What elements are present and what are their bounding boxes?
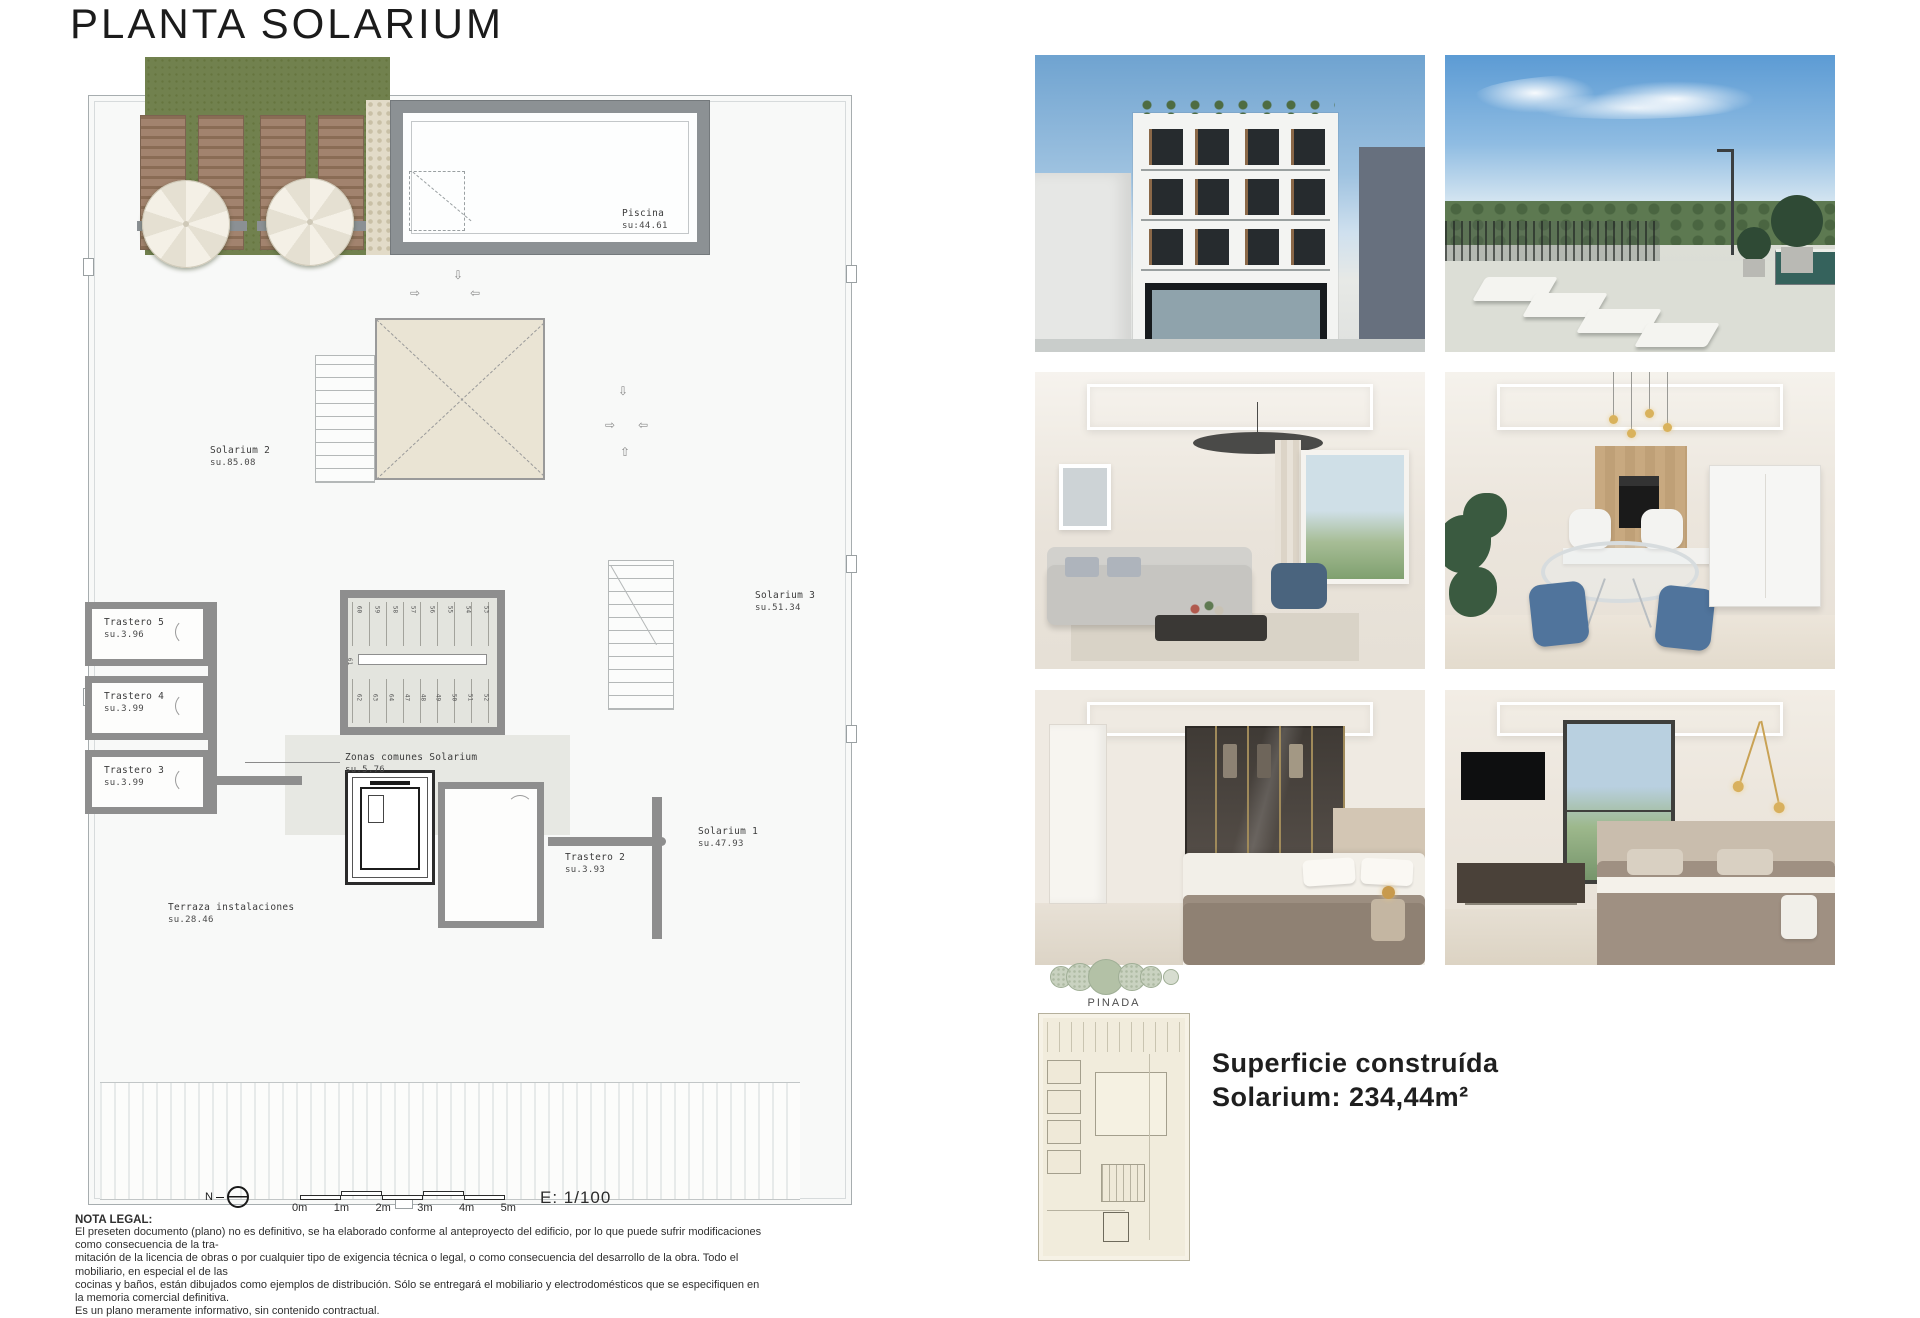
room-trastero-4: Trastero 4 SU.3.99 bbox=[85, 676, 210, 740]
siteplan-room bbox=[1047, 1090, 1081, 1114]
scale-ratio: E: 1/100 bbox=[540, 1188, 611, 1208]
hanging-clothes bbox=[1257, 744, 1271, 778]
window bbox=[1195, 229, 1229, 265]
siteplan-room bbox=[1047, 1150, 1081, 1174]
hanging-clothes bbox=[1289, 744, 1303, 778]
slope-arrow-icon: ⇦ bbox=[470, 286, 480, 300]
pillow bbox=[1360, 858, 1413, 887]
planter-pot bbox=[1781, 247, 1813, 273]
stair-number: 49 bbox=[435, 693, 442, 703]
scale-ticks: 0m1m2m3m4m5m bbox=[292, 1202, 516, 1214]
siteplan-elevator bbox=[1103, 1212, 1129, 1242]
elevator-car bbox=[360, 787, 420, 870]
stair-numbers-lower: 626364474849505152 bbox=[354, 694, 491, 701]
media-console bbox=[1457, 863, 1585, 903]
ceiling-recess bbox=[1087, 384, 1373, 430]
street bbox=[1035, 339, 1425, 352]
pendant-bulb bbox=[1631, 372, 1632, 430]
leader-line bbox=[245, 762, 340, 763]
bed-sheet-fold bbox=[1597, 877, 1835, 893]
compass-icon bbox=[227, 1186, 249, 1208]
window bbox=[1245, 229, 1279, 265]
hanging-clothes bbox=[1223, 744, 1237, 778]
stair-number: 54 bbox=[464, 605, 471, 615]
window bbox=[1149, 229, 1183, 265]
photo-building-exterior bbox=[1035, 55, 1425, 352]
stair-core: 6059585756555453 61 626364474849505152 bbox=[340, 590, 505, 735]
wall-wing bbox=[548, 837, 666, 846]
floor bbox=[1445, 615, 1835, 669]
scale-tick-label: 1m bbox=[334, 1202, 349, 1214]
siteplan-stairs bbox=[1101, 1164, 1145, 1202]
skylight bbox=[375, 318, 545, 480]
tree-icon bbox=[1140, 966, 1162, 988]
room-label-trastero-2: Trastero 2 SU.3.93 bbox=[565, 852, 625, 876]
plant-leaf bbox=[1463, 493, 1507, 539]
room-label-solarium-3: Solarium 3 SU.51.34 bbox=[755, 590, 815, 614]
scale-tick-label: 5m bbox=[501, 1202, 516, 1214]
door-arc bbox=[175, 767, 201, 793]
room-label-solarium-2: Solarium 2 SU.85.08 bbox=[210, 445, 270, 469]
deck-paving bbox=[100, 1082, 800, 1200]
siteplan-room bbox=[1047, 1120, 1081, 1144]
joint-mark bbox=[846, 265, 857, 283]
room-label-zonas-comunes: Zonas comunes Solarium SU.5.76 bbox=[345, 752, 477, 776]
siteplan-line bbox=[1047, 1210, 1125, 1211]
plant bbox=[1737, 227, 1771, 261]
scale-segment bbox=[382, 1195, 423, 1200]
pendant-stem bbox=[1257, 402, 1258, 436]
photo-rooftop-terrace bbox=[1445, 55, 1835, 352]
balcony-rail bbox=[1141, 269, 1330, 271]
joint-mark bbox=[846, 725, 857, 743]
pendant-bulb bbox=[1649, 372, 1650, 410]
stair-number: 52 bbox=[483, 693, 490, 703]
window bbox=[1291, 229, 1325, 265]
stair-flight bbox=[315, 355, 375, 483]
north-compass: N bbox=[205, 1186, 249, 1208]
window bbox=[1195, 129, 1229, 165]
photo-dining-kitchen bbox=[1445, 372, 1835, 669]
siteplan-room bbox=[1047, 1060, 1081, 1084]
stair-number: 56 bbox=[428, 605, 435, 615]
stair-numbers-upper: 6059585756555453 bbox=[354, 606, 491, 613]
summary-line-2: Solarium: 234,44m² bbox=[1212, 1082, 1469, 1113]
photo-bedroom-window bbox=[1445, 690, 1835, 965]
siteplan-line bbox=[1149, 1054, 1150, 1240]
scale-bar bbox=[300, 1191, 505, 1201]
cushion bbox=[1065, 557, 1099, 577]
slope-arrow-icon: ⇨ bbox=[410, 286, 420, 300]
floor-plan: Piscina SU:44.61 ⇩ ⇨ ⇦ ⇩ ⇨ ⇦ ⇧ 605958575… bbox=[60, 40, 870, 1210]
stair-number: 47 bbox=[403, 693, 410, 703]
window bbox=[1245, 179, 1279, 215]
room-trastero-2 bbox=[438, 782, 544, 928]
nightstand bbox=[1781, 895, 1817, 939]
sideboard-cabinet bbox=[1709, 465, 1821, 607]
parasol bbox=[142, 180, 230, 268]
joint-mark bbox=[846, 555, 857, 573]
elevator-shaft bbox=[345, 770, 435, 885]
stair-number: 55 bbox=[446, 605, 453, 615]
stair-flight bbox=[608, 560, 674, 710]
pillow bbox=[1627, 849, 1683, 875]
stair-handrail bbox=[358, 654, 487, 665]
site-label: PINADA bbox=[1038, 997, 1190, 1009]
room-trastero-5: Trastero 5 SU.3.96 bbox=[85, 602, 210, 666]
stair-number: 61 bbox=[346, 658, 353, 665]
stair-number: 60 bbox=[356, 605, 363, 615]
room-label-piscina: Piscina SU:44.61 bbox=[622, 208, 668, 232]
window bbox=[1149, 129, 1183, 165]
joint-mark bbox=[83, 258, 94, 276]
siteplan-skylight bbox=[1095, 1072, 1167, 1136]
legal-line: Es un plano meramente informativo, sin c… bbox=[75, 1305, 770, 1318]
window bbox=[1195, 179, 1229, 215]
stair-number: 50 bbox=[451, 693, 458, 703]
window bbox=[1291, 129, 1325, 165]
dining-chair-blue bbox=[1528, 580, 1590, 648]
tv-screen bbox=[1461, 752, 1545, 800]
pool-steps bbox=[409, 171, 465, 231]
stair-number: 58 bbox=[392, 605, 399, 615]
compass-line bbox=[216, 1197, 224, 1198]
north-label: N bbox=[205, 1191, 213, 1203]
stair-number: 62 bbox=[356, 693, 363, 703]
balcony-rail bbox=[1141, 219, 1330, 221]
slope-arrow-icon: ⇩ bbox=[453, 268, 463, 282]
wall-art bbox=[1059, 464, 1111, 530]
legal-heading: NOTA LEGAL: bbox=[75, 1214, 770, 1226]
table-lamp bbox=[1382, 886, 1395, 899]
room-trastero-3: Trastero 3 SU.3.99 bbox=[85, 750, 210, 814]
ceiling-recess bbox=[1497, 384, 1783, 430]
slope-arrow-icon: ⇧ bbox=[620, 445, 630, 459]
wall bbox=[210, 776, 302, 785]
photo-bedroom-wardrobe bbox=[1035, 690, 1425, 965]
legal-line: mitación de la licencia de obras o por c… bbox=[75, 1252, 770, 1278]
stair-number: 53 bbox=[482, 605, 489, 615]
neighbor-building bbox=[1359, 147, 1425, 352]
balcony-rail bbox=[1141, 169, 1330, 171]
stair-number: 64 bbox=[387, 693, 394, 703]
window bbox=[1245, 129, 1279, 165]
coffee-table bbox=[1155, 615, 1267, 641]
stair-number: 59 bbox=[374, 605, 381, 615]
door bbox=[1049, 724, 1107, 904]
door-arc bbox=[507, 795, 533, 821]
wall-partition bbox=[652, 797, 662, 939]
parasol bbox=[266, 178, 354, 266]
cushion bbox=[1107, 557, 1141, 577]
stair-number: 63 bbox=[371, 693, 378, 703]
armchair bbox=[1271, 563, 1327, 609]
scale-tick-label: 0m bbox=[292, 1202, 307, 1214]
pillow bbox=[1717, 849, 1773, 875]
dining-chair-blue bbox=[1654, 584, 1716, 652]
pendant-bulb bbox=[1667, 372, 1668, 424]
pine-trees-icon bbox=[1038, 958, 1190, 996]
nightstand bbox=[1371, 899, 1405, 941]
legal-line: cocinas y baños, están dibujados como ej… bbox=[75, 1279, 770, 1305]
stair-diagonal bbox=[610, 565, 657, 645]
neighbor-building bbox=[1035, 173, 1131, 352]
scale-tick-label: 4m bbox=[459, 1202, 474, 1214]
slope-arrow-icon: ⇦ bbox=[638, 418, 648, 432]
planter-pot bbox=[1743, 259, 1765, 277]
clouds bbox=[1475, 73, 1775, 119]
plant-leaf bbox=[1449, 567, 1497, 617]
pebble-strip bbox=[366, 100, 392, 255]
plant bbox=[1771, 195, 1823, 247]
outdoor-shower bbox=[1731, 149, 1734, 255]
pendant-bulb bbox=[1613, 372, 1614, 416]
summary-line-1: Superficie construída bbox=[1212, 1048, 1499, 1079]
scale-tick-label: 2m bbox=[375, 1202, 390, 1214]
scale-tick-label: 3m bbox=[417, 1202, 432, 1214]
site-plan-thumbnail bbox=[1038, 1013, 1190, 1261]
tree-icon bbox=[1163, 969, 1179, 985]
pillow bbox=[1302, 857, 1356, 887]
siteplan-hatch bbox=[1047, 1022, 1181, 1052]
scale-segment bbox=[341, 1191, 382, 1196]
legal-line: El preseten documento (plano) no es defi… bbox=[75, 1226, 770, 1252]
slope-arrow-icon: ⇩ bbox=[618, 384, 628, 398]
door-arc bbox=[175, 693, 201, 719]
door-arc bbox=[175, 619, 201, 645]
stair-number: 51 bbox=[467, 693, 474, 703]
legal-note: NOTA LEGAL: El preseten documento (plano… bbox=[75, 1214, 770, 1318]
window bbox=[1149, 179, 1183, 215]
photo-living-room bbox=[1035, 372, 1425, 669]
window bbox=[1291, 179, 1325, 215]
roof-plants bbox=[1135, 99, 1335, 114]
slope-arrow-icon: ⇨ bbox=[605, 418, 615, 432]
scale-segment bbox=[300, 1195, 341, 1200]
stair-number: 48 bbox=[419, 693, 426, 703]
room-label-solarium-1: Solarium 1 SU.47.93 bbox=[698, 826, 758, 850]
room-label-terraza: Terraza instalaciones SU.28.46 bbox=[168, 902, 294, 926]
stair-number: 57 bbox=[410, 605, 417, 615]
scale-segment bbox=[423, 1191, 464, 1196]
lounger bbox=[1634, 323, 1720, 347]
scale-segment bbox=[464, 1195, 505, 1200]
